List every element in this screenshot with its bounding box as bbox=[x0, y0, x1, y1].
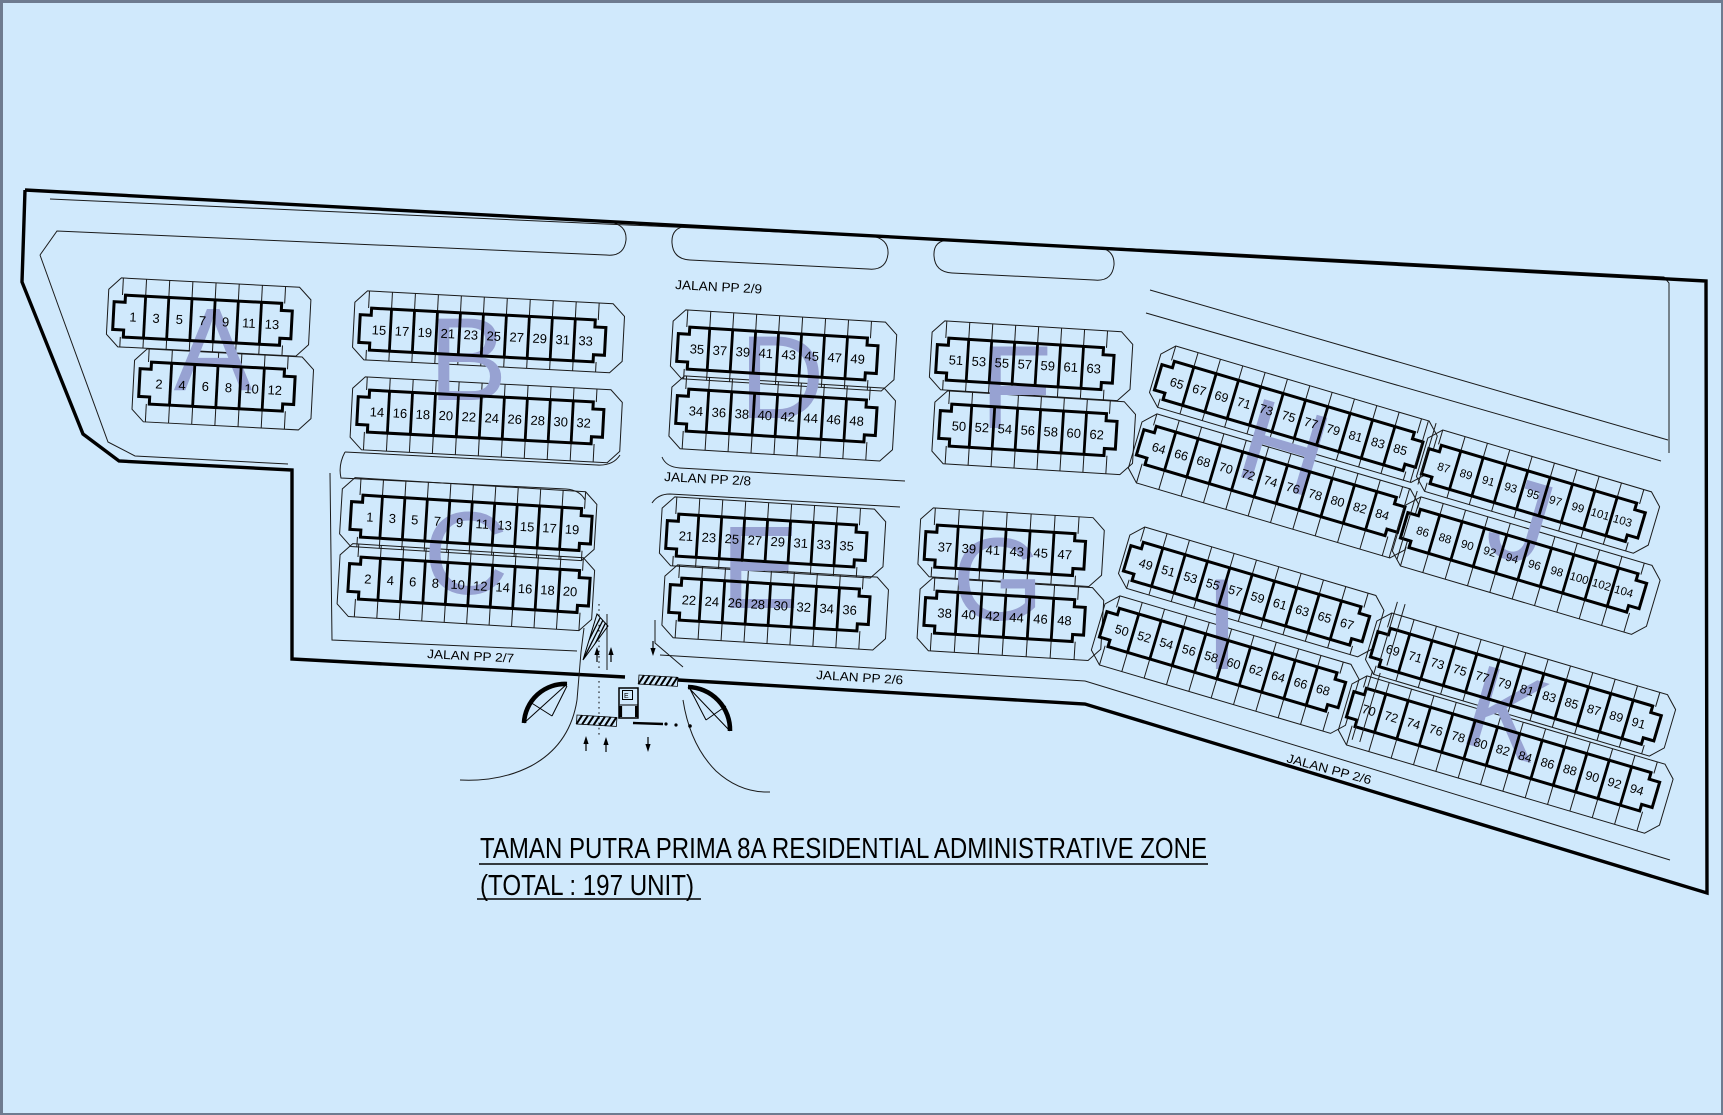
svg-text:25: 25 bbox=[486, 328, 501, 344]
svg-text:7: 7 bbox=[198, 313, 206, 328]
svg-text:54: 54 bbox=[997, 421, 1012, 437]
svg-text:13: 13 bbox=[264, 316, 279, 332]
svg-text:6: 6 bbox=[201, 379, 209, 394]
svg-text:22: 22 bbox=[681, 592, 696, 608]
svg-text:20: 20 bbox=[438, 408, 453, 424]
svg-text:(TOTAL : 197 UNIT): (TOTAL : 197 UNIT) bbox=[480, 870, 694, 902]
svg-text:18: 18 bbox=[540, 582, 555, 598]
svg-text:50: 50 bbox=[951, 418, 966, 434]
svg-text:10: 10 bbox=[244, 381, 259, 397]
svg-text:9: 9 bbox=[456, 515, 464, 530]
svg-text:2: 2 bbox=[364, 571, 372, 586]
svg-text:13: 13 bbox=[497, 517, 512, 533]
svg-text:56: 56 bbox=[1020, 422, 1035, 438]
svg-text:3: 3 bbox=[152, 311, 160, 326]
svg-text:35: 35 bbox=[839, 538, 854, 554]
svg-text:11: 11 bbox=[475, 516, 489, 532]
svg-text:19: 19 bbox=[564, 522, 579, 538]
svg-text:57: 57 bbox=[1017, 356, 1032, 372]
svg-text:36: 36 bbox=[842, 602, 857, 618]
svg-text:E: E bbox=[624, 693, 629, 700]
svg-text:24: 24 bbox=[484, 410, 499, 426]
svg-text:2: 2 bbox=[155, 376, 163, 391]
svg-text:14: 14 bbox=[369, 404, 384, 420]
svg-text:16: 16 bbox=[392, 405, 407, 421]
svg-text:JALAN PP 2/8: JALAN PP 2/8 bbox=[664, 469, 752, 489]
svg-text:29: 29 bbox=[532, 331, 547, 347]
svg-text:60: 60 bbox=[1066, 425, 1081, 441]
svg-text:44: 44 bbox=[803, 410, 818, 426]
svg-text:40: 40 bbox=[961, 607, 976, 623]
svg-text:31: 31 bbox=[555, 332, 570, 348]
svg-text:18: 18 bbox=[415, 407, 430, 423]
svg-text:3: 3 bbox=[388, 511, 396, 526]
svg-text:34: 34 bbox=[819, 601, 834, 617]
svg-text:37: 37 bbox=[937, 539, 952, 555]
svg-text:4: 4 bbox=[178, 378, 186, 393]
svg-text:19: 19 bbox=[417, 325, 432, 341]
svg-text:31: 31 bbox=[793, 535, 808, 551]
svg-text:12: 12 bbox=[267, 382, 282, 398]
svg-text:JALAN PP 2/6: JALAN PP 2/6 bbox=[816, 668, 904, 687]
svg-text:59: 59 bbox=[1040, 358, 1055, 374]
svg-text:41: 41 bbox=[758, 345, 773, 361]
svg-text:58: 58 bbox=[1043, 424, 1058, 440]
svg-text:15: 15 bbox=[519, 519, 534, 535]
svg-text:15: 15 bbox=[371, 322, 386, 338]
svg-text:32: 32 bbox=[576, 415, 591, 431]
svg-text:33: 33 bbox=[816, 537, 831, 553]
svg-text:42: 42 bbox=[985, 608, 1000, 624]
svg-text:JALAN PP 2/7: JALAN PP 2/7 bbox=[427, 647, 515, 666]
svg-text:23: 23 bbox=[701, 530, 716, 546]
svg-text:26: 26 bbox=[727, 595, 742, 611]
svg-text:26: 26 bbox=[507, 411, 522, 427]
svg-text:17: 17 bbox=[394, 323, 409, 339]
svg-text:34: 34 bbox=[688, 403, 703, 419]
svg-text:7: 7 bbox=[433, 514, 441, 529]
svg-text:33: 33 bbox=[578, 333, 593, 349]
svg-text:28: 28 bbox=[750, 596, 765, 612]
svg-text:52: 52 bbox=[974, 420, 989, 436]
svg-text:17: 17 bbox=[542, 520, 557, 536]
svg-text:6: 6 bbox=[409, 574, 417, 589]
svg-text:61: 61 bbox=[1063, 359, 1078, 375]
svg-text:29: 29 bbox=[770, 534, 785, 550]
svg-text:42: 42 bbox=[780, 409, 795, 425]
svg-text:36: 36 bbox=[711, 405, 726, 421]
svg-text:46: 46 bbox=[1033, 611, 1048, 627]
svg-text:5: 5 bbox=[411, 512, 419, 527]
svg-text:48: 48 bbox=[849, 413, 864, 429]
svg-text:51: 51 bbox=[948, 352, 963, 368]
svg-text:28: 28 bbox=[530, 413, 545, 429]
svg-text:47: 47 bbox=[827, 350, 842, 366]
svg-text:30: 30 bbox=[773, 598, 788, 614]
svg-text:11: 11 bbox=[242, 315, 256, 331]
svg-text:45: 45 bbox=[1033, 545, 1048, 561]
svg-text:62: 62 bbox=[1089, 427, 1104, 443]
svg-text:27: 27 bbox=[509, 329, 524, 345]
svg-text:24: 24 bbox=[704, 594, 719, 610]
svg-text:39: 39 bbox=[961, 541, 976, 557]
svg-text:1: 1 bbox=[129, 309, 137, 324]
svg-text:20: 20 bbox=[562, 584, 577, 600]
svg-text:16: 16 bbox=[517, 581, 532, 597]
svg-text:21: 21 bbox=[678, 528, 693, 544]
svg-text:49: 49 bbox=[850, 351, 865, 367]
svg-text:27: 27 bbox=[747, 532, 762, 548]
svg-text:14: 14 bbox=[495, 579, 510, 595]
svg-text:40: 40 bbox=[757, 407, 772, 423]
svg-text:41: 41 bbox=[985, 542, 1000, 558]
svg-text:43: 43 bbox=[781, 347, 796, 363]
svg-text:35: 35 bbox=[689, 341, 704, 357]
svg-text:37: 37 bbox=[712, 343, 727, 359]
svg-text:53: 53 bbox=[971, 354, 986, 370]
svg-text:55: 55 bbox=[994, 355, 1009, 371]
svg-text:JALAN PP 2/9: JALAN PP 2/9 bbox=[675, 277, 763, 297]
svg-text:30: 30 bbox=[553, 414, 568, 430]
svg-text:63: 63 bbox=[1086, 361, 1101, 377]
svg-text:21: 21 bbox=[440, 326, 455, 342]
svg-text:8: 8 bbox=[224, 380, 232, 395]
svg-text:4: 4 bbox=[386, 573, 394, 588]
svg-text:23: 23 bbox=[463, 327, 478, 343]
svg-text:38: 38 bbox=[734, 406, 749, 422]
svg-text:1: 1 bbox=[366, 509, 374, 524]
svg-text:TAMAN PUTRA PRIMA 8A RESIDENTI: TAMAN PUTRA PRIMA 8A RESIDENTIAL ADMINIS… bbox=[480, 833, 1207, 865]
svg-text:9: 9 bbox=[222, 314, 230, 329]
svg-text:44: 44 bbox=[1009, 610, 1024, 626]
svg-text:47: 47 bbox=[1057, 547, 1072, 563]
svg-text:12: 12 bbox=[473, 578, 488, 594]
svg-text:22: 22 bbox=[461, 409, 476, 425]
svg-text:46: 46 bbox=[826, 412, 841, 428]
svg-text:8: 8 bbox=[431, 576, 439, 591]
svg-text:43: 43 bbox=[1009, 544, 1024, 560]
svg-text:48: 48 bbox=[1057, 613, 1072, 629]
svg-text:5: 5 bbox=[175, 312, 183, 327]
svg-text:39: 39 bbox=[735, 344, 750, 360]
svg-text:32: 32 bbox=[796, 599, 811, 615]
svg-text:38: 38 bbox=[937, 605, 952, 621]
svg-text:10: 10 bbox=[450, 577, 465, 593]
svg-text:45: 45 bbox=[804, 348, 819, 364]
svg-text:25: 25 bbox=[724, 531, 739, 547]
